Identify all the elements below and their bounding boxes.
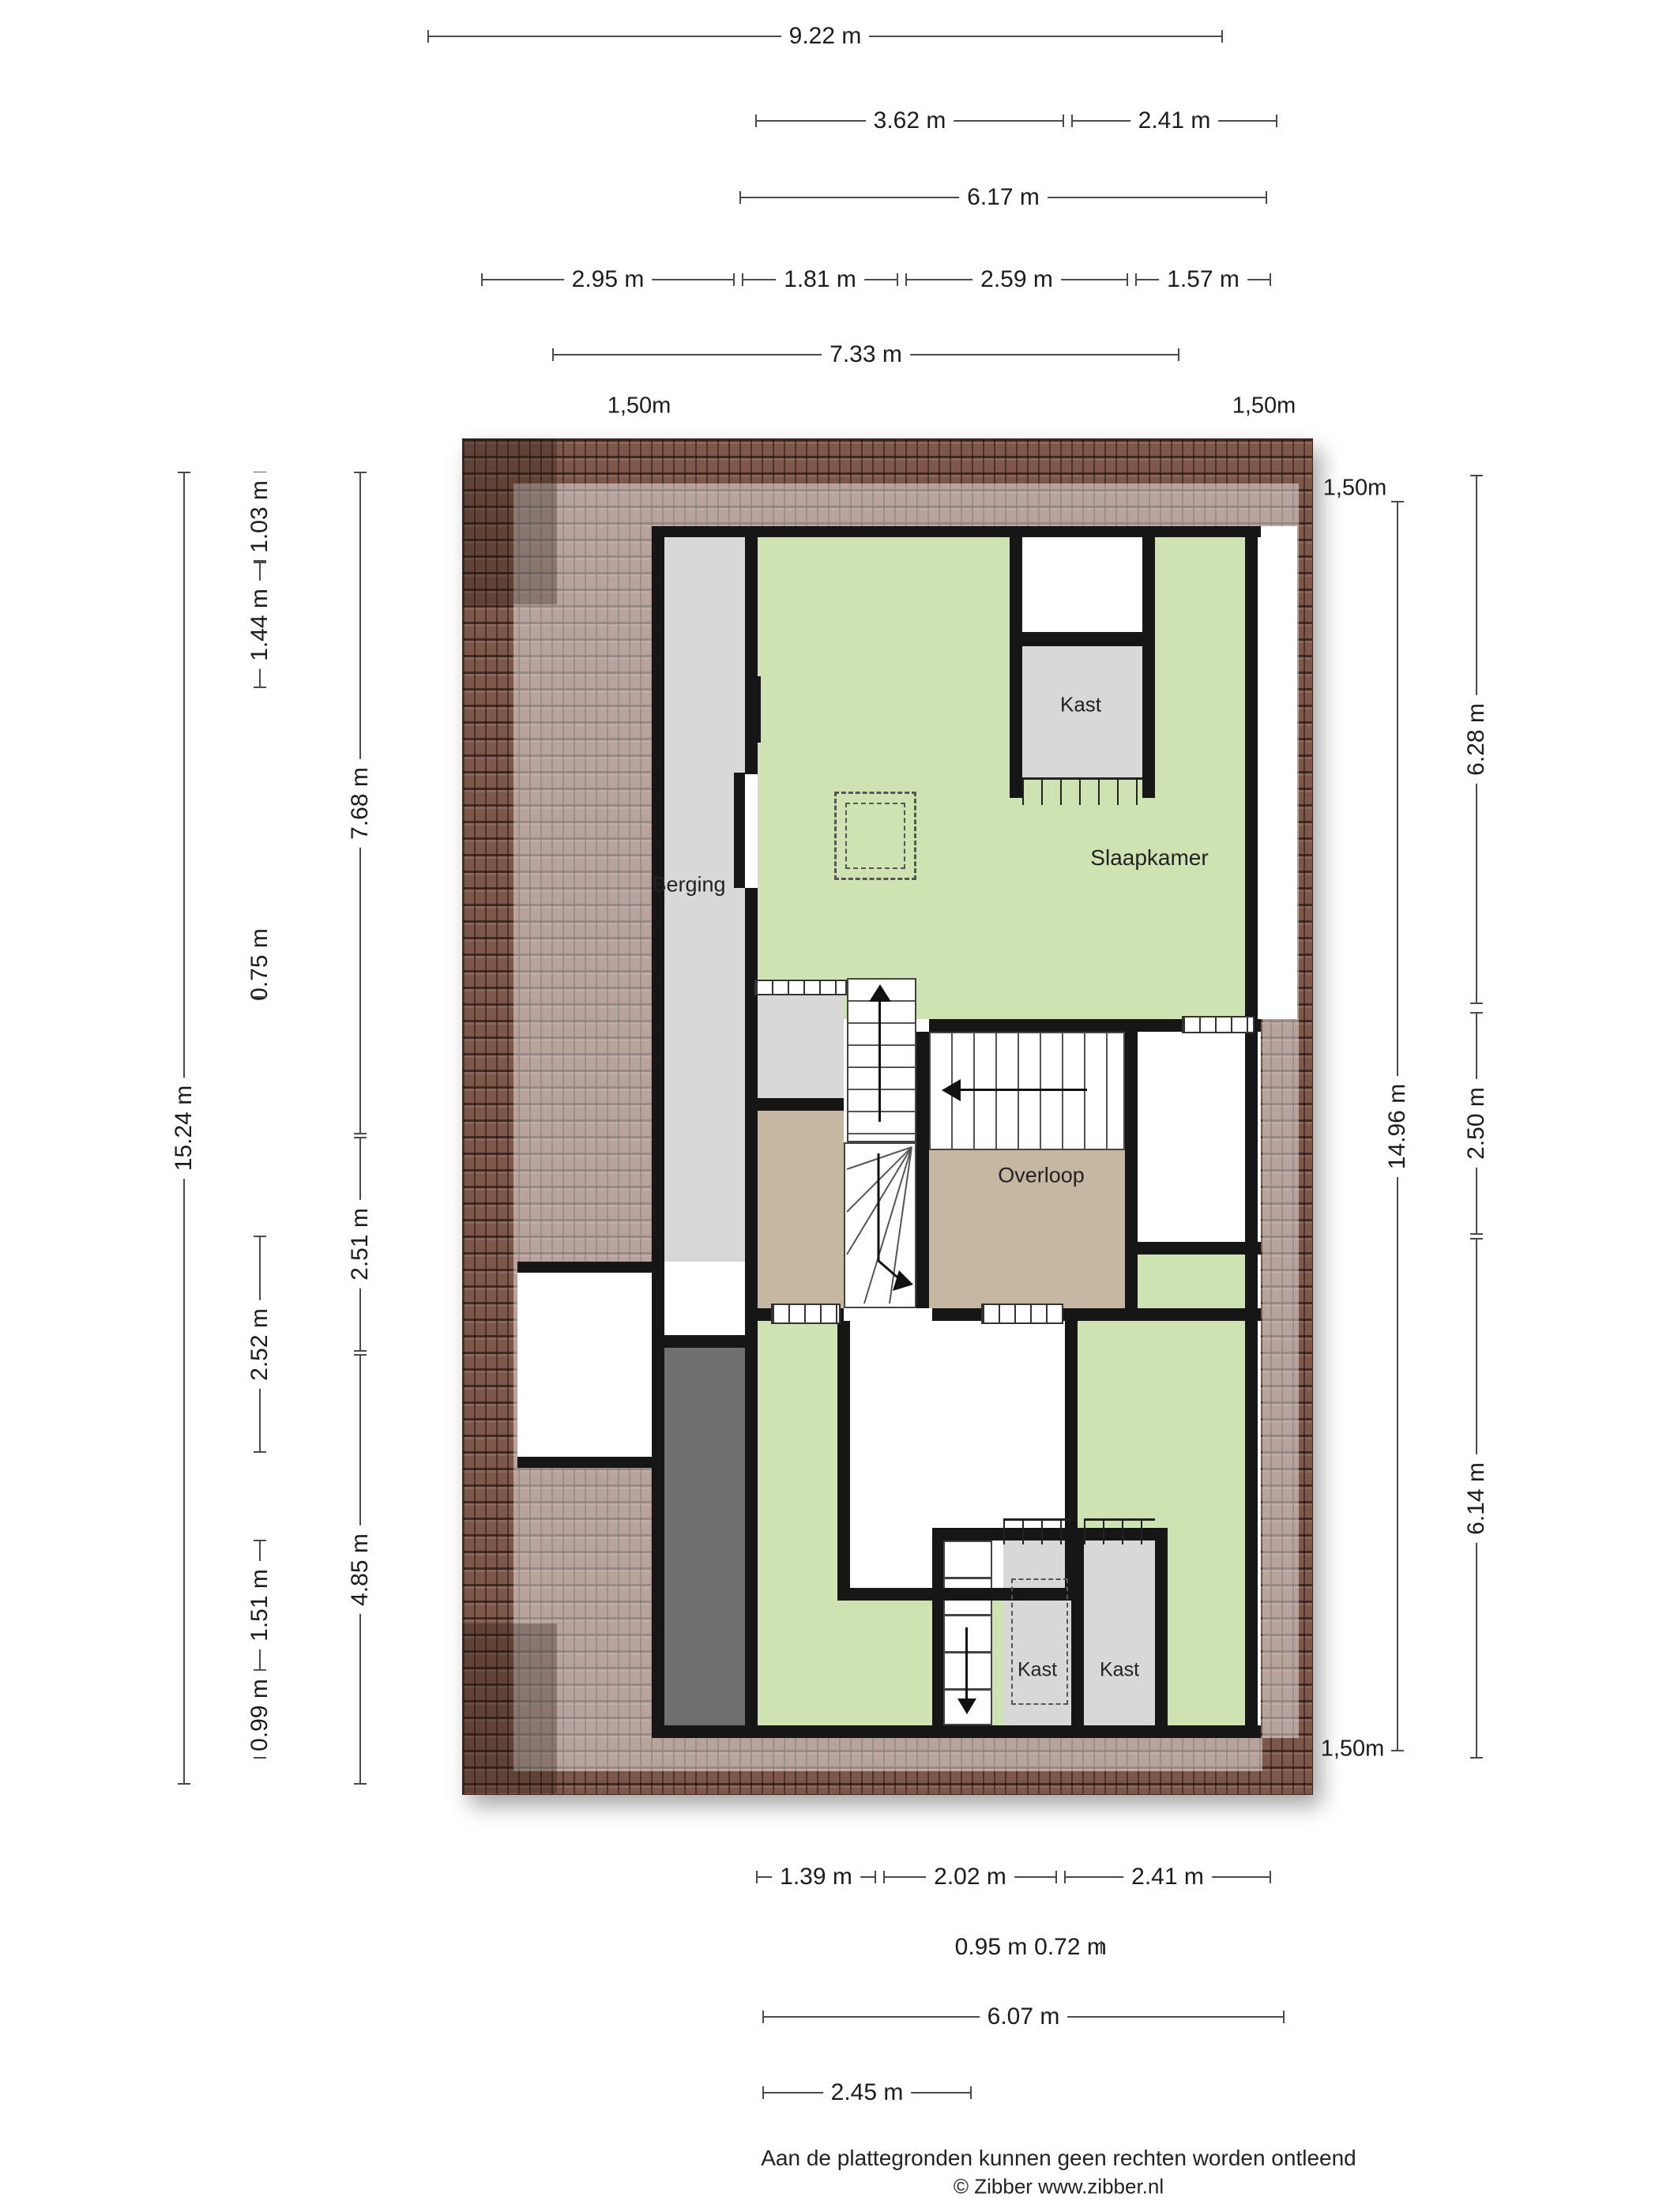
dimension-line: 1.03 m (259, 472, 261, 561)
dimension-line: 1.51 m (259, 1540, 261, 1670)
dimension-line: 2.50 m (1476, 1013, 1477, 1234)
dimension-line: 2.45 m (763, 2092, 971, 2093)
dimension-label: 1.81 m (776, 265, 864, 294)
dimension-label: 0.95 m (947, 1933, 1036, 1962)
dimension-label: 1.51 m (246, 1561, 274, 1650)
dimension-line: 15.24 m (183, 472, 185, 1784)
dimension-label: 2.50 m (1462, 1079, 1491, 1168)
kast-bottom-left-label: Kast (1018, 1659, 1057, 1682)
dimension-label: 6.14 m (1462, 1454, 1491, 1543)
dimension-label: 1.03 m (246, 472, 274, 561)
dimension-label: 7.68 m (346, 759, 374, 848)
dimension-label: 0.75 m (246, 920, 274, 1009)
dimension-label: 2.52 m (246, 1300, 274, 1389)
roof-height-label: 1,50m (1323, 476, 1387, 502)
dimension-line: 0.72 m (1040, 1947, 1101, 1948)
dimension-line: 1.39 m (757, 1876, 875, 1878)
dimension-line: 3.62 m (756, 120, 1063, 122)
dimension-label: 6.17 m (959, 183, 1048, 212)
dimension-line: 6.17 m (740, 197, 1266, 198)
dimension-line: 2.59 m (906, 279, 1127, 280)
dimension-line: 2.95 m (482, 279, 734, 280)
dimension-line: 9.22 m (428, 36, 1222, 37)
berging-label: Berging (652, 873, 725, 897)
dimension-line: 1.81 m (743, 279, 897, 280)
dimension-label: 6.28 m (1462, 695, 1491, 784)
dimension-line: 7.33 m (553, 354, 1179, 355)
dimension-line: 6.07 m (763, 2016, 1284, 2018)
kast-top-label: Kast (1060, 693, 1101, 717)
dimension-label: 2.41 m (1130, 107, 1219, 135)
dimension-line: 1.44 m (259, 562, 261, 687)
dimension-line: 2.52 m (259, 1236, 261, 1452)
dimension-label: 2.95 m (564, 265, 653, 294)
dimension-label: 0.99 m (246, 1671, 274, 1759)
dimension-label: 2.51 m (346, 1200, 374, 1288)
dimension-label: 1.57 m (1159, 265, 1247, 294)
dimension-line: 2.51 m (359, 1138, 361, 1351)
dimension-label: 3.62 m (866, 107, 954, 135)
slaapkamer-label: Slaapkamer (1090, 845, 1208, 871)
kast-bottom-right-label: Kast (1100, 1659, 1139, 1682)
dimension-line: 0.95 m (950, 1947, 1032, 1948)
dimension-line: 2.41 m (1072, 120, 1277, 122)
footer-disclaimer: Aan de plattegronden kunnen geen rechten… (761, 2146, 1356, 2171)
overloop-label: Overloop (998, 1164, 1085, 1188)
dimension-label: 1.39 m (772, 1863, 860, 1891)
dimension-label: 2.41 m (1123, 1863, 1212, 1891)
dimension-label: 2.45 m (823, 2078, 912, 2107)
roof-height-label: 1,50m (1232, 393, 1296, 419)
dimension-label: 0.72 m (1026, 1933, 1115, 1962)
dimension-line: 2.41 m (1065, 1876, 1270, 1878)
dimension-label: 2.02 m (926, 1863, 1014, 1891)
dimension-line: 7.68 m (359, 472, 361, 1134)
dimension-label: 6.07 m (980, 2003, 1068, 2031)
roof-height-label: 1,50m (608, 393, 671, 419)
dimension-line: 0.99 m (259, 1672, 261, 1758)
dimension-label: 2.59 m (972, 265, 1061, 294)
dimension-line: 6.14 m (1476, 1239, 1477, 1758)
dimension-line: 4.85 m (359, 1355, 361, 1784)
dimension-line: 6.28 m (1476, 476, 1477, 1003)
dimension-label: 4.85 m (346, 1525, 374, 1614)
annotation-layer: 9.22 m3.62 m2.41 m6.17 m2.95 m1.81 m2.59… (0, 0, 1659, 2212)
roof-height-label: 1,50m (1321, 1736, 1385, 1762)
dimension-label: 1.44 m (246, 581, 274, 669)
floorplan-canvas: 9.22 m3.62 m2.41 m6.17 m2.95 m1.81 m2.59… (0, 0, 1659, 2212)
dimension-label: 9.22 m (781, 22, 870, 51)
dimension-label: 15.24 m (170, 1078, 198, 1179)
dimension-line: 1.57 m (1136, 279, 1270, 280)
footer-credit: © Zibber www.zibber.nl (954, 2175, 1164, 2199)
dimension-label: 7.33 m (822, 340, 910, 369)
dimension-label: 14.96 m (1383, 1075, 1412, 1176)
dimension-line: 0.75 m (259, 932, 261, 997)
dimension-line: 14.96 m (1397, 502, 1398, 1751)
dimension-line: 2.02 m (884, 1876, 1056, 1878)
